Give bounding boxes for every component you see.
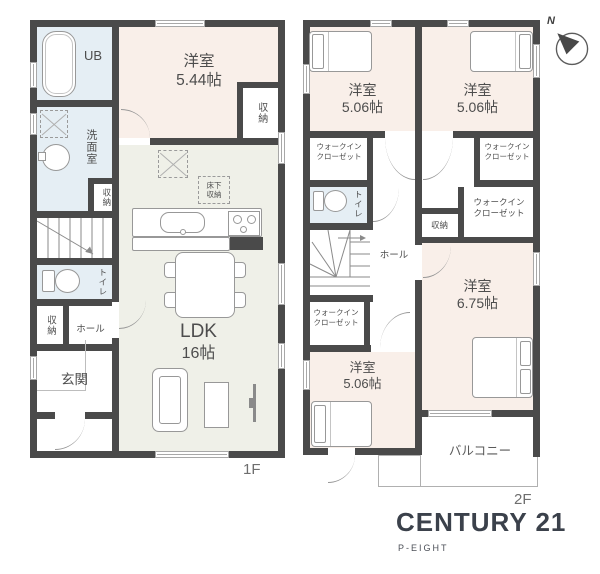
window bbox=[30, 113, 37, 135]
ldk-name: LDK bbox=[180, 320, 217, 344]
compass-north-label: N bbox=[543, 15, 559, 29]
window bbox=[155, 451, 229, 458]
bed-pillow bbox=[519, 34, 531, 69]
bedroom-name: 洋室 bbox=[464, 278, 492, 296]
window bbox=[278, 132, 285, 164]
bathtub-inner bbox=[45, 34, 73, 94]
washbasin-tap bbox=[38, 152, 46, 161]
bedroom-size: 5.06帖 bbox=[457, 99, 498, 117]
ldk-size: 16帖 bbox=[182, 344, 216, 364]
stove-burner bbox=[240, 226, 247, 233]
balcony-text: バルコニー bbox=[449, 444, 511, 460]
door-arc-toilet-2f bbox=[373, 188, 399, 222]
stove-burner bbox=[247, 215, 256, 224]
room-label-ldk: LDK 16帖 bbox=[119, 313, 278, 371]
bed-pillow bbox=[520, 369, 531, 394]
stairs-1f-icon bbox=[37, 218, 112, 258]
bed-pillow bbox=[312, 34, 324, 69]
washer-space-icon bbox=[40, 110, 68, 138]
wall bbox=[230, 237, 263, 250]
room-label-toilet: トイレ bbox=[94, 266, 111, 298]
company-name: P-EIGHT bbox=[398, 543, 449, 553]
window bbox=[533, 252, 540, 286]
wall bbox=[303, 448, 422, 455]
underfloor-line1: 床下 bbox=[207, 181, 222, 190]
window bbox=[428, 410, 492, 417]
bedroom-name: 洋室 bbox=[349, 360, 375, 376]
chair-icon bbox=[234, 292, 246, 308]
bedroom-name: 洋室 bbox=[183, 52, 214, 71]
sofa-seat bbox=[159, 376, 181, 424]
toilet-tank-icon bbox=[313, 191, 324, 211]
room-label-wic-nw: ウォークイン クローゼット bbox=[308, 140, 370, 164]
wall bbox=[303, 223, 373, 230]
bed-fold-line bbox=[516, 338, 517, 397]
window bbox=[278, 343, 285, 369]
bed-fold-line bbox=[515, 32, 516, 71]
stove-burner bbox=[233, 215, 242, 224]
wic-line1: ウォークイン bbox=[473, 197, 524, 208]
wall bbox=[278, 20, 285, 458]
bedroom-name: 洋室 bbox=[464, 82, 492, 100]
room-label-storage-hall: 収納 bbox=[38, 308, 62, 342]
wall bbox=[415, 280, 422, 455]
coffee-table-icon bbox=[204, 382, 229, 428]
window bbox=[447, 20, 469, 27]
storage-text: 収納 bbox=[431, 220, 448, 231]
bedroom-size: 5.06帖 bbox=[343, 376, 381, 392]
window bbox=[370, 20, 392, 27]
tv-icon bbox=[253, 384, 256, 422]
room-label-wic-ne: ウォークイン クローゼット bbox=[478, 140, 536, 164]
door-arc-bedroom-sw bbox=[380, 312, 410, 348]
bed-fold-line bbox=[328, 32, 329, 71]
window bbox=[303, 360, 310, 390]
tv-stand bbox=[249, 398, 253, 408]
wall bbox=[30, 100, 119, 107]
toilet-text: トイレ bbox=[97, 268, 108, 297]
room-label-wic-east: ウォークイン クローゼット bbox=[464, 194, 534, 222]
room-label-wic-sw: ウォークイン クローゼット bbox=[306, 306, 366, 330]
door-arc-balcony bbox=[328, 455, 355, 483]
window bbox=[30, 62, 37, 88]
window bbox=[533, 44, 540, 78]
window bbox=[155, 20, 205, 27]
wic-line1: ウォークイン bbox=[485, 142, 530, 152]
storage-text: 収納 bbox=[44, 315, 56, 336]
bedroom-size: 6.75帖 bbox=[457, 295, 498, 313]
storage-text: 収納 bbox=[101, 188, 112, 207]
room-label-storage-mid: 収納 bbox=[94, 183, 119, 212]
toilet-tank-icon bbox=[42, 270, 55, 292]
room-label-bedroom-nw: 洋室 5.06帖 bbox=[310, 76, 415, 122]
kitchen-island-front bbox=[132, 237, 230, 251]
bed-pillow bbox=[520, 341, 531, 366]
window bbox=[278, 263, 285, 305]
wic-line2: クローゼット bbox=[314, 318, 359, 328]
room-label-balcony: バルコニー bbox=[430, 443, 530, 461]
balcony-walkway-outline bbox=[378, 455, 421, 487]
toilet-bowl-icon bbox=[55, 269, 80, 293]
chair-icon bbox=[164, 262, 176, 278]
stairs-2f-icon bbox=[310, 230, 370, 295]
room-label-bedroom-sw: 洋室 5.06帖 bbox=[310, 354, 415, 398]
wall bbox=[150, 138, 278, 145]
floor-label-2f: 2F bbox=[514, 491, 532, 508]
toilet-text: トイレ bbox=[353, 190, 364, 219]
door-opening bbox=[55, 412, 85, 419]
wall bbox=[303, 295, 373, 302]
hall-text: ホール bbox=[380, 250, 409, 262]
room-label-ub: UB bbox=[76, 46, 110, 66]
room-label-hall: ホール bbox=[69, 322, 112, 338]
wall bbox=[30, 258, 119, 265]
wall bbox=[112, 20, 119, 458]
wic-line1: ウォークイン bbox=[317, 142, 362, 152]
ub-text: UB bbox=[84, 48, 102, 64]
washroom-text: 洗面室 bbox=[83, 129, 97, 165]
room-label-storage-2f: 収納 bbox=[421, 215, 458, 235]
window bbox=[30, 356, 37, 380]
floor-label-1f: 1F bbox=[243, 461, 261, 478]
bedroom-size: 5.44帖 bbox=[176, 71, 222, 90]
bedroom-size: 5.06帖 bbox=[342, 99, 383, 117]
wall bbox=[30, 211, 119, 218]
door-opening bbox=[119, 138, 150, 145]
underfloor-storage-label: 床下 収納 bbox=[198, 176, 230, 204]
closet-text: 収納 bbox=[254, 102, 267, 124]
room-label-bedroom-1f: 洋室 5.44帖 bbox=[139, 48, 259, 94]
wall bbox=[464, 237, 540, 243]
room-label-toilet-2f: トイレ bbox=[350, 188, 366, 220]
hall-text: ホール bbox=[76, 324, 105, 336]
company-text: P-EIGHT bbox=[398, 543, 449, 553]
wic-line1: ウォークイン bbox=[314, 308, 359, 318]
wall bbox=[303, 345, 371, 352]
chair-icon bbox=[234, 262, 246, 278]
door-arc-bedroom-nw bbox=[385, 138, 415, 180]
kitchen-tap-icon bbox=[180, 229, 186, 235]
wic-line2: クローゼット bbox=[473, 208, 524, 219]
door-arc-entrance bbox=[55, 419, 85, 450]
wall bbox=[453, 131, 540, 138]
toilet-bowl-icon bbox=[324, 190, 347, 212]
bed-pillow bbox=[314, 405, 326, 443]
wall bbox=[415, 20, 422, 138]
door-opening bbox=[328, 448, 355, 455]
room-label-washroom: 洗面室 bbox=[80, 112, 100, 182]
room-label-entrance: 玄関 bbox=[37, 370, 112, 390]
compass-icon bbox=[550, 25, 594, 69]
wall bbox=[421, 237, 464, 243]
washbasin-icon bbox=[42, 144, 70, 171]
wic-line2: クローゼット bbox=[485, 152, 530, 162]
fridge-space-icon bbox=[158, 150, 188, 178]
wall bbox=[303, 131, 385, 138]
door-arc-bedroom-ne bbox=[423, 138, 453, 180]
floorplan-image: 床下 収納 UB 洗面室 収納 トイレ 収納 ホール 玄関 洋室 5.4 bbox=[0, 0, 600, 574]
room-label-hall-2f: ホール bbox=[373, 248, 415, 264]
entrance-text: 玄関 bbox=[61, 372, 88, 389]
underfloor-line2: 収納 bbox=[207, 190, 222, 199]
brand-text: CENTURY 21 bbox=[396, 507, 566, 537]
bedroom-name: 洋室 bbox=[349, 82, 377, 100]
room-label-closet-1f: 収納 bbox=[243, 92, 278, 134]
bed-fold-line bbox=[330, 402, 331, 446]
north-text: N bbox=[547, 15, 555, 29]
room-label-bedroom-se: 洋室 6.75帖 bbox=[422, 272, 533, 318]
wall bbox=[303, 180, 373, 187]
floor2-text: 2F bbox=[514, 491, 532, 508]
door-opening bbox=[112, 302, 119, 338]
wall bbox=[30, 299, 119, 306]
wall bbox=[474, 180, 540, 187]
wic-line2: クローゼット bbox=[317, 152, 362, 162]
floor1-text: 1F bbox=[243, 461, 261, 478]
chair-icon bbox=[164, 292, 176, 308]
room-label-bedroom-ne: 洋室 5.06帖 bbox=[422, 76, 533, 122]
century21-logo: CENTURY 21 bbox=[396, 507, 566, 538]
dining-table-icon bbox=[175, 252, 235, 318]
